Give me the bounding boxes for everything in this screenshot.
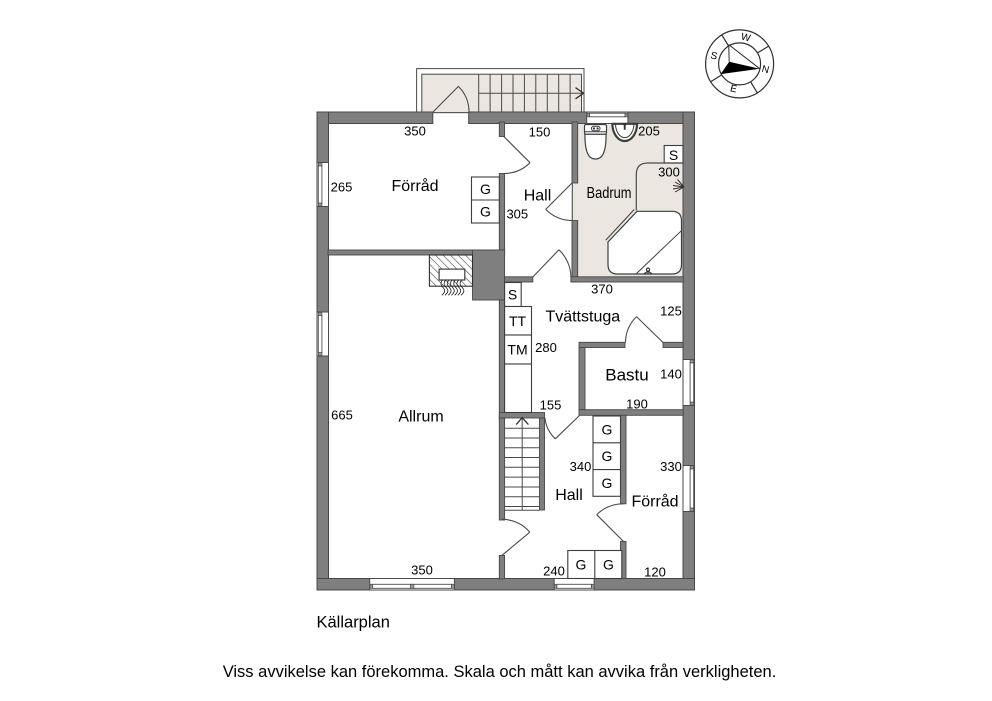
svg-text:Förråd: Förråd (391, 177, 438, 195)
svg-text:Förråd: Förråd (631, 492, 678, 510)
svg-text:305: 305 (506, 207, 528, 222)
svg-text:G: G (602, 448, 613, 464)
svg-text:155: 155 (540, 398, 562, 413)
svg-text:S: S (508, 287, 517, 303)
svg-text:G: G (602, 422, 613, 438)
svg-text:190: 190 (626, 397, 648, 412)
svg-text:150: 150 (529, 124, 551, 139)
svg-text:Viss avvikelse kan förekomma.: Viss avvikelse kan förekomma. Skala och … (223, 663, 777, 681)
svg-text:Hall: Hall (555, 487, 583, 504)
svg-text:G: G (603, 557, 614, 573)
svg-text:330: 330 (660, 459, 682, 474)
svg-text:Tvättstuga: Tvättstuga (545, 308, 620, 325)
svg-text:S: S (669, 147, 678, 163)
svg-text:G: G (480, 181, 491, 197)
svg-text:665: 665 (331, 408, 353, 423)
svg-text:TM: TM (507, 342, 527, 358)
svg-text:265: 265 (331, 180, 353, 195)
svg-text:G: G (602, 475, 613, 491)
svg-text:Bastu: Bastu (605, 365, 648, 384)
svg-text:120: 120 (644, 565, 666, 580)
svg-text:Källarplan: Källarplan (317, 614, 390, 632)
svg-text:G: G (576, 557, 587, 573)
svg-text:280: 280 (535, 340, 557, 355)
svg-text:205: 205 (638, 124, 660, 139)
svg-text:G: G (480, 204, 491, 220)
svg-text:Hall: Hall (524, 187, 552, 204)
svg-text:140: 140 (660, 367, 682, 382)
svg-text:Badrum: Badrum (587, 185, 632, 202)
svg-text:300: 300 (658, 164, 680, 179)
svg-text:370: 370 (591, 282, 613, 297)
svg-text:125: 125 (660, 304, 682, 319)
svg-text:TT: TT (509, 313, 527, 329)
svg-text:Allrum: Allrum (398, 409, 443, 426)
svg-text:350: 350 (411, 563, 433, 578)
svg-text:240: 240 (543, 564, 565, 579)
svg-text:350: 350 (404, 124, 426, 139)
svg-text:340: 340 (570, 459, 592, 474)
